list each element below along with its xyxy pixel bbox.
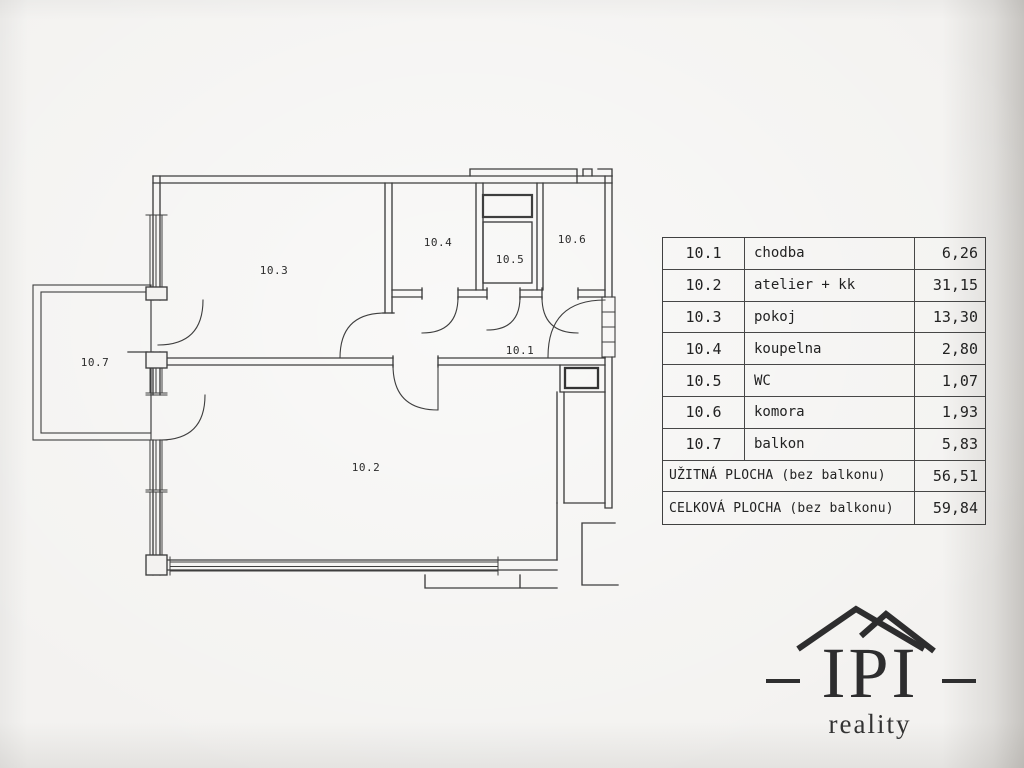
doors bbox=[158, 297, 615, 440]
logo-subtitle: reality bbox=[760, 709, 980, 740]
logo-title: IPI bbox=[822, 633, 919, 713]
service-room-boxes bbox=[483, 195, 532, 283]
room-area-table: 10.1 chodba 6,26 10.2 atelier + kk 31,15… bbox=[662, 237, 986, 525]
table-cell-num: 10.6 bbox=[663, 397, 745, 429]
table-summary-label: UŽITNÁ PLOCHA (bez balkonu) bbox=[663, 461, 915, 493]
room-label-10-3: 10.3 bbox=[252, 264, 296, 277]
interior-walls bbox=[153, 183, 605, 392]
table-cell-area: 31,15 bbox=[915, 270, 985, 302]
table-cell-num: 10.3 bbox=[663, 302, 745, 334]
shaft-box bbox=[565, 368, 598, 388]
table-cell-area: 13,30 bbox=[915, 302, 985, 334]
table-cell-num: 10.4 bbox=[663, 333, 745, 365]
table-cell-name: atelier + kk bbox=[745, 270, 915, 302]
table-cell-area: 1,93 bbox=[915, 397, 985, 429]
table-cell-area: 5,83 bbox=[915, 429, 985, 461]
table-cell-num: 10.1 bbox=[663, 238, 745, 270]
table-cell-area: 2,80 bbox=[915, 333, 985, 365]
logo-title-row: IPI bbox=[760, 637, 980, 711]
table-cell-num: 10.2 bbox=[663, 270, 745, 302]
table-cell-name: balkon bbox=[745, 429, 915, 461]
table-cell-num: 10.5 bbox=[663, 365, 745, 397]
logo-dash-left bbox=[766, 679, 800, 683]
room-label-10-7: 10.7 bbox=[73, 356, 117, 369]
table-cell-name: WC bbox=[745, 365, 915, 397]
table-cell-area: 1,07 bbox=[915, 365, 985, 397]
room-label-10-1: 10.1 bbox=[498, 344, 542, 357]
room-label-10-2: 10.2 bbox=[344, 461, 388, 474]
table-summary-label: CELKOVÁ PLOCHA (bez balkonu) bbox=[663, 492, 915, 524]
table-cell-num: 10.7 bbox=[663, 429, 745, 461]
table-cell-name: komora bbox=[745, 397, 915, 429]
table-summary-area: 56,51 bbox=[915, 461, 985, 493]
table-cell-name: chodba bbox=[745, 238, 915, 270]
misc-ticks bbox=[128, 287, 167, 575]
agency-logo: IPI reality bbox=[760, 596, 980, 740]
windows bbox=[146, 215, 498, 575]
table-summary-area: 59,84 bbox=[915, 492, 985, 524]
table-cell-area: 6,26 bbox=[915, 238, 985, 270]
room-label-10-5: 10.5 bbox=[488, 253, 532, 266]
table-cell-name: koupelna bbox=[745, 333, 915, 365]
table-cell-name: pokoj bbox=[745, 302, 915, 334]
room-label-10-4: 10.4 bbox=[416, 236, 460, 249]
logo-dash-right bbox=[942, 679, 976, 683]
room-label-10-6: 10.6 bbox=[550, 233, 594, 246]
